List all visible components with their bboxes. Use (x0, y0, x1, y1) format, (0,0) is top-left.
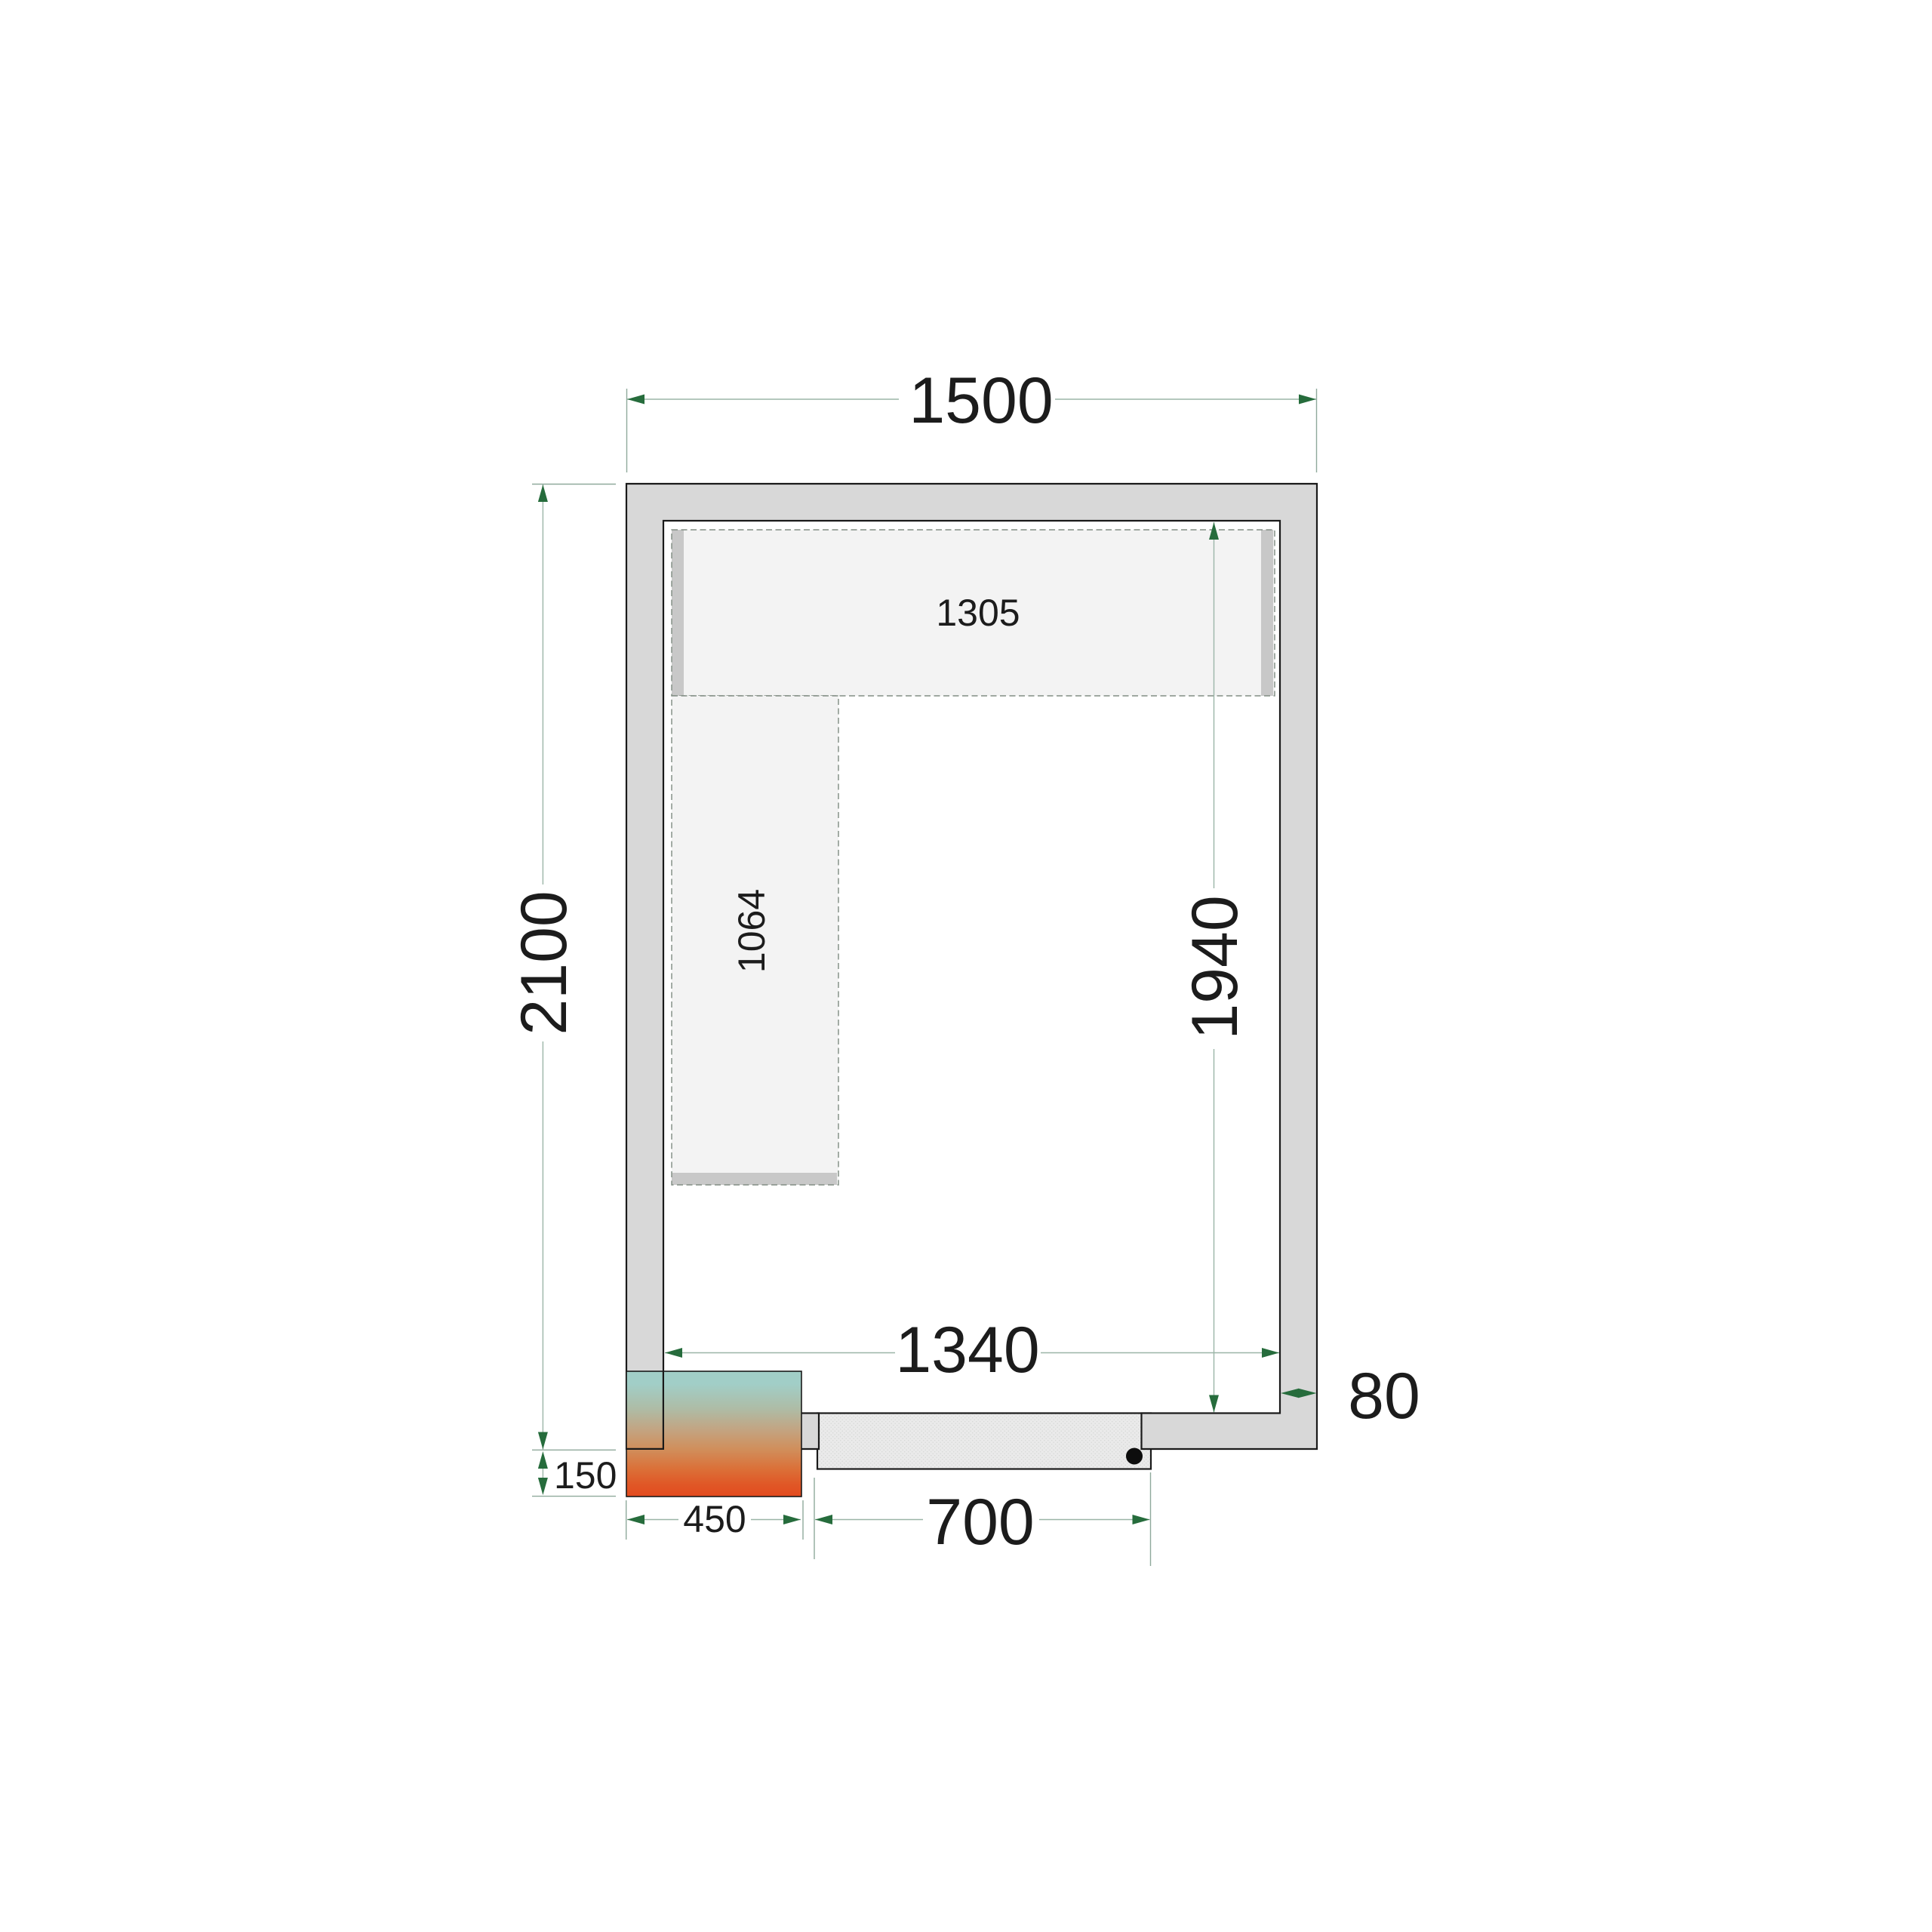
svg-text:1305: 1305 (936, 592, 1020, 634)
svg-text:1340: 1340 (895, 1314, 1039, 1386)
svg-text:150: 150 (554, 1454, 617, 1497)
svg-text:700: 700 (926, 1486, 1035, 1558)
svg-text:80: 80 (1348, 1360, 1420, 1432)
svg-text:2100: 2100 (508, 891, 580, 1035)
svg-text:450: 450 (683, 1498, 746, 1540)
svg-text:1064: 1064 (731, 889, 773, 973)
svg-text:1940: 1940 (1179, 895, 1251, 1039)
svg-text:1500: 1500 (909, 365, 1053, 437)
